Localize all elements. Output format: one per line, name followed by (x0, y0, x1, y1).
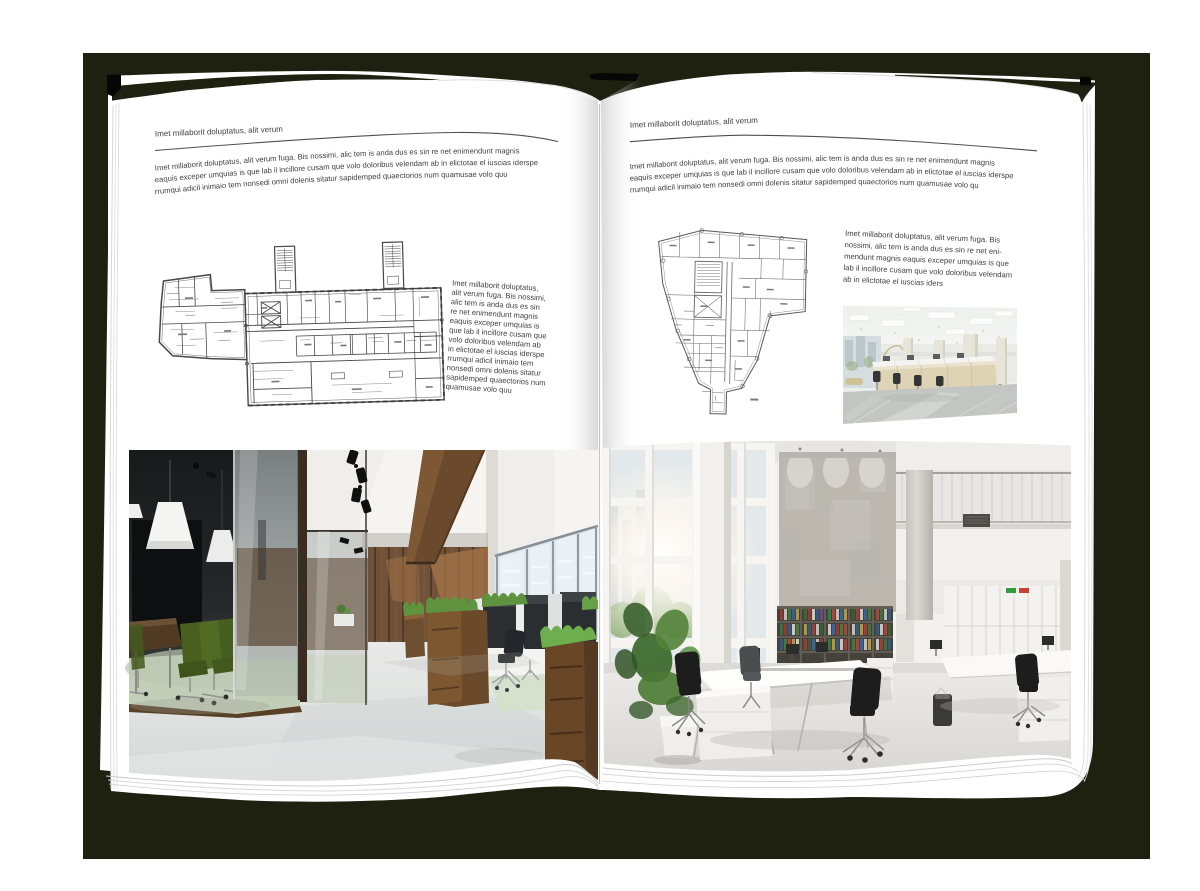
svg-text:Imet millaborit doluptatus,ali: Imet millaborit doluptatus,alit verum fu… (445, 278, 551, 397)
